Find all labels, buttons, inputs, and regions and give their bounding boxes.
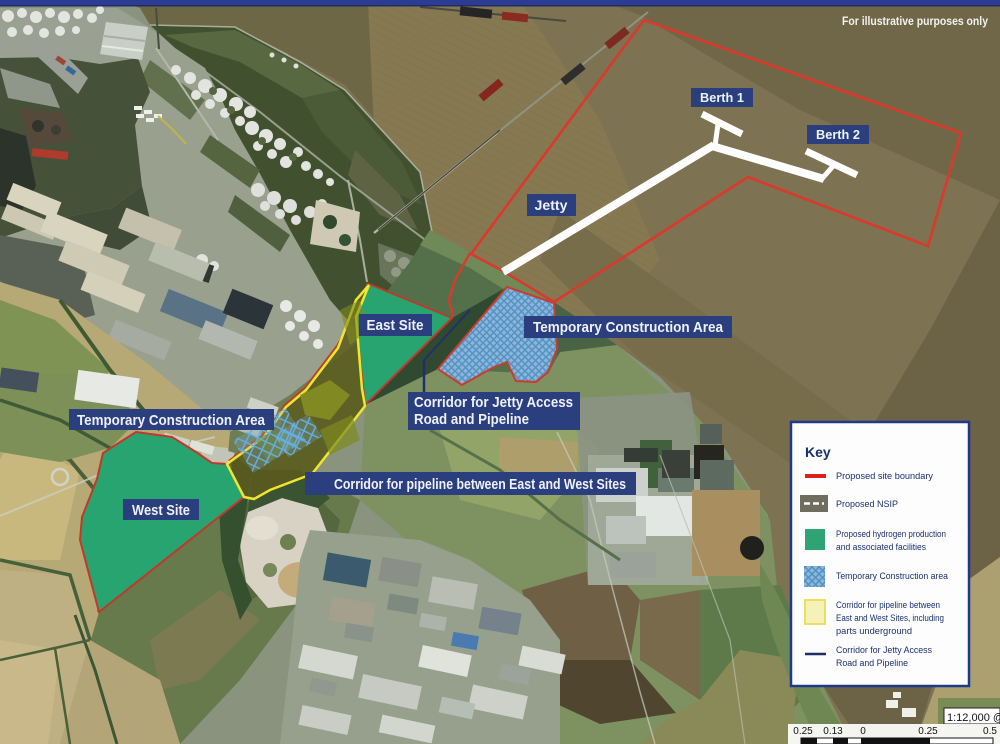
svg-text:0.25: 0.25 xyxy=(793,726,813,737)
svg-text:Corridor for pipeline between: Corridor for pipeline between xyxy=(836,600,940,610)
svg-text:Berth 1: Berth 1 xyxy=(700,90,744,105)
svg-text:0.13: 0.13 xyxy=(823,726,843,737)
svg-text:Berth 2: Berth 2 xyxy=(816,127,860,142)
svg-text:Proposed hydrogen production: Proposed hydrogen production xyxy=(836,529,946,539)
svg-text:Temporary Construction area: Temporary Construction area xyxy=(836,571,948,581)
svg-text:and associated facilities: and associated facilities xyxy=(836,542,926,552)
svg-text:For illustrative purposes only: For illustrative purposes only xyxy=(842,16,989,28)
svg-text:West Site: West Site xyxy=(132,502,190,519)
svg-text:Temporary Construction Area: Temporary Construction Area xyxy=(533,319,724,336)
svg-text:0.5: 0.5 xyxy=(983,726,997,737)
svg-text:Corridor for Jetty Access: Corridor for Jetty Access xyxy=(836,645,932,655)
svg-text:Road and Pipeline: Road and Pipeline xyxy=(414,411,529,428)
svg-text:Corridor for pipeline between: Corridor for pipeline between East and W… xyxy=(334,476,626,493)
svg-text:Jetty: Jetty xyxy=(535,197,568,213)
svg-text:East and West Sites, including: East and West Sites, including xyxy=(836,613,944,623)
svg-text:Corridor for Jetty Access: Corridor for Jetty Access xyxy=(414,394,573,411)
svg-text:parts underground: parts underground xyxy=(836,626,912,636)
svg-text:0.25: 0.25 xyxy=(918,726,938,737)
svg-text:Proposed site boundary: Proposed site boundary xyxy=(836,471,934,481)
svg-text:Proposed NSIP: Proposed NSIP xyxy=(836,499,898,509)
svg-text:1:12,000 @ A3: 1:12,000 @ A3 xyxy=(947,712,1000,724)
svg-text:East Site: East Site xyxy=(367,317,424,334)
svg-text:Road and Pipeline: Road and Pipeline xyxy=(836,658,908,668)
svg-text:Temporary Construction Area: Temporary Construction Area xyxy=(77,412,266,429)
svg-text:0: 0 xyxy=(860,726,866,737)
svg-text:Key: Key xyxy=(805,444,831,460)
